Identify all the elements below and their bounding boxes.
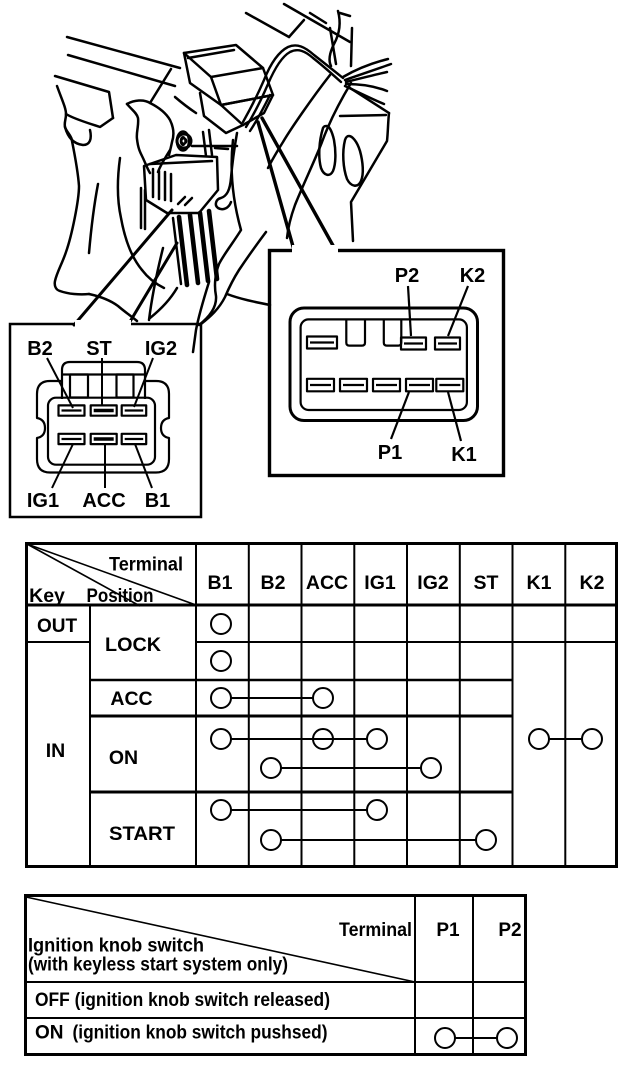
svg-text:OFF (ignition knob switch rele: OFF (ignition knob switch released) — [35, 990, 330, 1011]
svg-text:B2: B2 — [27, 338, 53, 360]
svg-text:P2: P2 — [395, 265, 419, 287]
svg-text:K2: K2 — [580, 572, 605, 594]
svg-text:K2: K2 — [460, 265, 486, 287]
svg-text:B1: B1 — [145, 490, 171, 512]
svg-text:IG1: IG1 — [27, 490, 59, 512]
svg-text:Key: Key — [29, 585, 65, 607]
svg-text:ACC: ACC — [82, 490, 125, 512]
svg-text:Terminal: Terminal — [109, 554, 183, 576]
svg-text:K1: K1 — [527, 572, 552, 594]
svg-text:Position: Position — [87, 585, 154, 607]
svg-text:P2: P2 — [498, 920, 521, 941]
svg-text:(with keyless start system onl: (with keyless start system only) — [28, 955, 288, 976]
svg-text:ACC: ACC — [110, 688, 152, 710]
svg-text:K1: K1 — [451, 444, 477, 466]
svg-text:Ignition knob switch: Ignition knob switch — [28, 936, 204, 957]
svg-text:B2: B2 — [261, 572, 286, 594]
svg-text:ACC: ACC — [306, 572, 348, 594]
svg-text:OUT: OUT — [37, 616, 78, 637]
svg-text:IN: IN — [46, 740, 66, 762]
svg-text:Terminal: Terminal — [339, 920, 412, 941]
svg-text:P1: P1 — [378, 442, 402, 464]
svg-text:ST: ST — [86, 338, 112, 360]
svg-text:ST: ST — [474, 572, 499, 594]
svg-text:P1: P1 — [436, 920, 460, 941]
svg-text:LOCK: LOCK — [105, 634, 161, 656]
svg-text:ON: ON — [35, 1023, 64, 1044]
svg-text:IG2: IG2 — [417, 572, 449, 594]
svg-text:(ignition knob switch pushsed): (ignition knob switch pushsed) — [73, 1023, 328, 1044]
svg-text:B1: B1 — [208, 572, 233, 594]
svg-text:ON: ON — [109, 747, 138, 769]
svg-text:IG1: IG1 — [364, 572, 396, 594]
svg-text:START: START — [109, 823, 175, 845]
svg-text:IG2: IG2 — [145, 338, 177, 360]
